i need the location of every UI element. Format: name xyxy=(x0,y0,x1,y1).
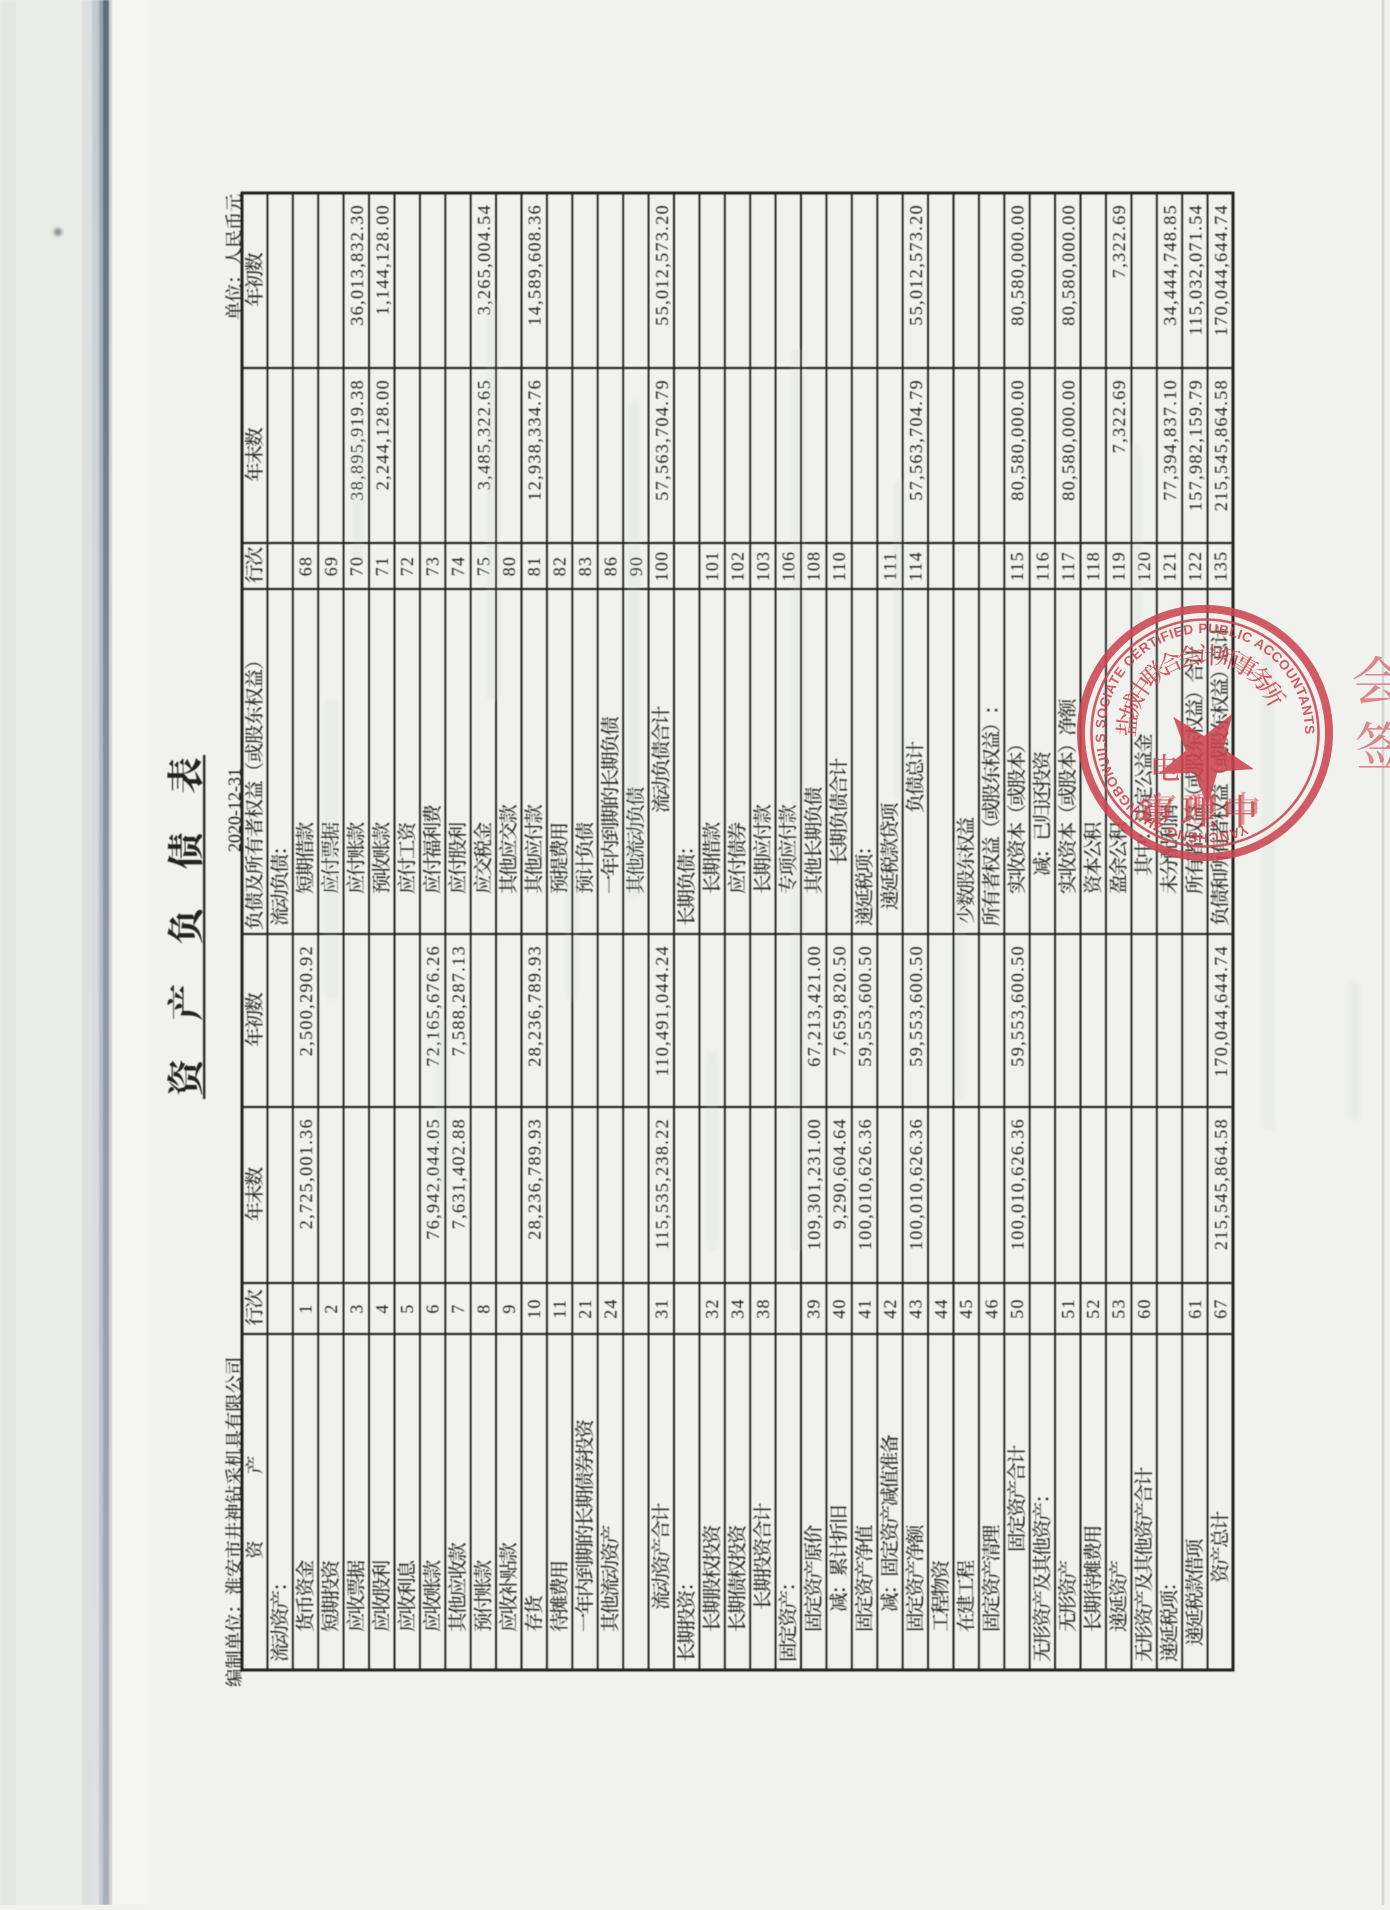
svg-text:2,244,128.00: 2,244,128.00 xyxy=(372,379,392,490)
svg-text:114: 114 xyxy=(905,551,925,581)
svg-text:6: 6 xyxy=(423,1303,443,1313)
svg-text:80: 80 xyxy=(499,556,519,577)
svg-text:7,322.69: 7,322.69 xyxy=(1109,379,1129,453)
svg-text:109,301,231.00: 109,301,231.00 xyxy=(804,1118,824,1250)
svg-text:36,013,832.30: 36,013,832.30 xyxy=(347,204,367,326)
svg-text:57,563,704.79: 57,563,704.79 xyxy=(652,379,672,501)
svg-text:72,165,676.26: 72,165,676.26 xyxy=(423,945,443,1067)
svg-text:108: 108 xyxy=(804,551,824,582)
svg-text:86: 86 xyxy=(601,556,621,577)
svg-text:32: 32 xyxy=(702,1298,722,1319)
svg-text:110: 110 xyxy=(829,551,849,581)
svg-text:43: 43 xyxy=(905,1298,925,1319)
svg-text:3,265,004.54: 3,265,004.54 xyxy=(474,204,494,315)
svg-text:1,144,128.00: 1,144,128.00 xyxy=(372,204,392,315)
svg-text:41: 41 xyxy=(855,1298,875,1319)
svg-text:110,491,044.24: 110,491,044.24 xyxy=(652,945,672,1076)
svg-text:34,444,748.85: 34,444,748.85 xyxy=(1160,204,1180,326)
svg-text:80,580,000.00: 80,580,000.00 xyxy=(1008,379,1028,501)
svg-text:60: 60 xyxy=(1134,1298,1154,1319)
svg-text:28,236,789.93: 28,236,789.93 xyxy=(525,945,545,1067)
svg-text:55,012,573.20: 55,012,573.20 xyxy=(652,204,672,326)
svg-text:61: 61 xyxy=(1185,1298,1205,1319)
svg-text:7,631,402.88: 7,631,402.88 xyxy=(449,1118,469,1229)
svg-text:170,044,644.74: 170,044,644.74 xyxy=(1211,204,1231,336)
svg-text:215,545,864.58: 215,545,864.58 xyxy=(1211,1118,1231,1250)
svg-text:111: 111 xyxy=(880,551,900,581)
svg-text:170,044,644.74: 170,044,644.74 xyxy=(1211,945,1231,1077)
svg-text:73: 73 xyxy=(423,556,443,577)
svg-text:14,589,608.36: 14,589,608.36 xyxy=(525,204,545,326)
svg-text:215,545,864.58: 215,545,864.58 xyxy=(1211,379,1231,511)
svg-text:74: 74 xyxy=(448,556,468,577)
svg-text:59,553,600.50: 59,553,600.50 xyxy=(906,945,926,1067)
svg-text:68: 68 xyxy=(296,556,316,577)
svg-text:3: 3 xyxy=(346,1303,366,1313)
svg-text:7,588,287.13: 7,588,287.13 xyxy=(449,945,469,1056)
svg-text:115,535,238.22: 115,535,238.22 xyxy=(652,1118,672,1249)
svg-text:7,659,820.50: 7,659,820.50 xyxy=(830,945,850,1056)
svg-text:102: 102 xyxy=(728,551,748,582)
svg-text:9: 9 xyxy=(499,1303,519,1313)
svg-text:51: 51 xyxy=(1058,1298,1078,1319)
svg-text:9,290,604.64: 9,290,604.64 xyxy=(830,1118,850,1229)
svg-text:100,010,626.36: 100,010,626.36 xyxy=(855,1118,875,1250)
svg-text:72: 72 xyxy=(397,556,417,577)
svg-text:83: 83 xyxy=(575,556,595,577)
svg-text:55,012,573.20: 55,012,573.20 xyxy=(906,204,926,326)
svg-text:2: 2 xyxy=(321,1303,341,1313)
svg-text:100: 100 xyxy=(651,551,671,582)
svg-text:44: 44 xyxy=(931,1298,951,1319)
svg-text:46: 46 xyxy=(982,1298,1002,1319)
svg-text:121: 121 xyxy=(1160,551,1180,582)
svg-text:38,895,919.38: 38,895,919.38 xyxy=(347,379,367,501)
svg-text:70: 70 xyxy=(346,556,366,577)
svg-text:71: 71 xyxy=(372,556,392,577)
svg-text:59,553,600.50: 59,553,600.50 xyxy=(1008,945,1028,1067)
svg-text:115: 115 xyxy=(1007,551,1027,581)
svg-text:57,563,704.79: 57,563,704.79 xyxy=(906,379,926,501)
svg-text:7: 7 xyxy=(448,1303,468,1313)
svg-text:3,485,322.65: 3,485,322.65 xyxy=(474,379,494,490)
svg-text:100,010,626.36: 100,010,626.36 xyxy=(906,1118,926,1250)
svg-text:50: 50 xyxy=(1007,1298,1027,1319)
svg-text:67: 67 xyxy=(1210,1298,1230,1319)
svg-text:118: 118 xyxy=(1083,551,1103,581)
svg-text:106: 106 xyxy=(778,551,798,582)
svg-text:67,213,421.00: 67,213,421.00 xyxy=(804,945,824,1067)
svg-text:28,236,789.93: 28,236,789.93 xyxy=(525,1118,545,1240)
svg-text:157,982,159.79: 157,982,159.79 xyxy=(1185,379,1205,511)
svg-text:75: 75 xyxy=(473,556,493,577)
svg-text:77,394,837.10: 77,394,837.10 xyxy=(1160,379,1180,501)
svg-text:122: 122 xyxy=(1185,551,1205,582)
svg-text:8: 8 xyxy=(473,1303,493,1313)
svg-text:21: 21 xyxy=(575,1298,595,1319)
svg-text:39: 39 xyxy=(804,1298,824,1319)
svg-text:12,938,334.76: 12,938,334.76 xyxy=(525,379,545,501)
svg-text:135: 135 xyxy=(1210,551,1230,582)
svg-text:103: 103 xyxy=(753,551,773,582)
svg-text:120: 120 xyxy=(1134,551,1154,582)
svg-text:116: 116 xyxy=(1032,551,1052,581)
svg-text:53: 53 xyxy=(1109,1298,1129,1319)
svg-text:117: 117 xyxy=(1058,551,1078,581)
svg-text:2,500,290.92: 2,500,290.92 xyxy=(296,945,316,1056)
svg-text:4: 4 xyxy=(372,1303,392,1313)
svg-text:100,010,626.36: 100,010,626.36 xyxy=(1008,1118,1028,1250)
svg-text:115,032,071.54: 115,032,071.54 xyxy=(1185,204,1205,335)
svg-text:80,580,000.00: 80,580,000.00 xyxy=(1008,204,1028,326)
svg-text:52: 52 xyxy=(1083,1298,1103,1319)
svg-text:101: 101 xyxy=(702,551,722,582)
svg-text:11: 11 xyxy=(550,1299,570,1319)
svg-text:7,322.69: 7,322.69 xyxy=(1109,204,1129,278)
svg-text:34: 34 xyxy=(728,1298,748,1319)
svg-text:2,725,001.36: 2,725,001.36 xyxy=(296,1118,316,1229)
svg-text:82: 82 xyxy=(550,556,570,577)
svg-text:31: 31 xyxy=(651,1298,671,1319)
svg-text:42: 42 xyxy=(880,1298,900,1319)
svg-text:90: 90 xyxy=(626,556,646,577)
svg-text:119: 119 xyxy=(1109,551,1129,581)
svg-text:24: 24 xyxy=(601,1298,621,1319)
svg-text:1: 1 xyxy=(296,1303,316,1313)
svg-text:80,580,000.00: 80,580,000.00 xyxy=(1058,379,1078,501)
svg-text:10: 10 xyxy=(524,1298,544,1319)
svg-text:59,553,600.50: 59,553,600.50 xyxy=(855,945,875,1067)
svg-text:76,942,044.05: 76,942,044.05 xyxy=(423,1118,443,1240)
svg-text:69: 69 xyxy=(321,556,341,577)
svg-text:40: 40 xyxy=(829,1298,849,1319)
svg-text:5: 5 xyxy=(397,1303,417,1313)
svg-text:80,580,000.00: 80,580,000.00 xyxy=(1058,204,1078,326)
svg-text:45: 45 xyxy=(956,1298,976,1319)
svg-text:81: 81 xyxy=(524,556,544,577)
svg-text:38: 38 xyxy=(753,1298,773,1319)
